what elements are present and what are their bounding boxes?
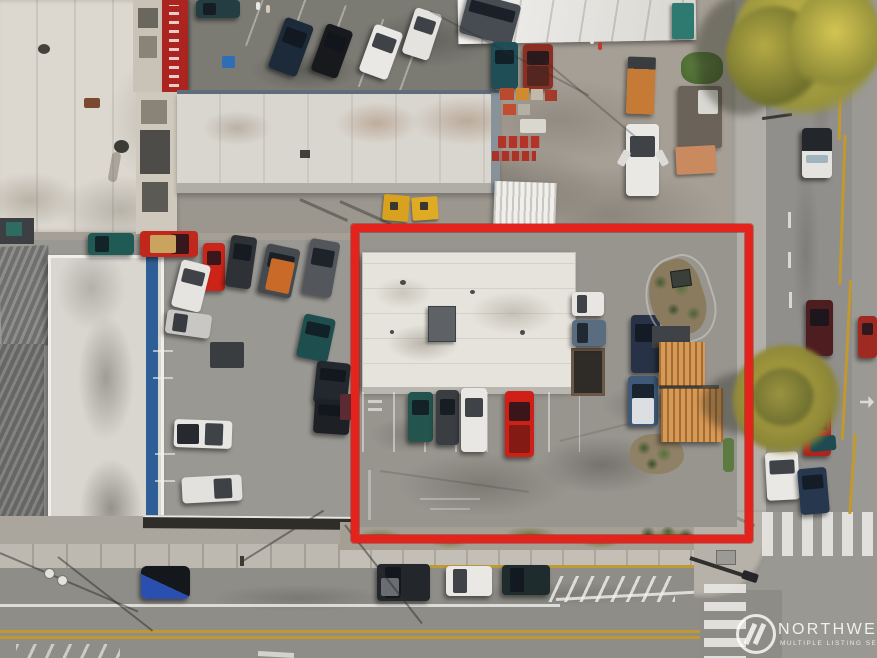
watermark-subtitle: MULTIPLE LISTING SERVICE. xyxy=(780,640,877,647)
pallet xyxy=(545,90,557,101)
pedestrian xyxy=(598,42,602,50)
double-yellow-line xyxy=(0,630,700,633)
utility-cabinet xyxy=(716,550,736,565)
stall-line xyxy=(155,453,175,455)
stall-line xyxy=(153,350,173,352)
parked-car xyxy=(165,309,213,339)
pedestrian xyxy=(256,2,260,10)
storefront-window xyxy=(140,130,170,174)
lane-dash xyxy=(788,212,791,228)
stall-line xyxy=(153,377,173,379)
dark-awning-band xyxy=(143,515,355,530)
parked-car xyxy=(797,467,830,515)
crosswalk-horizontal xyxy=(762,512,877,556)
watermark-title: NORTHWEST xyxy=(778,621,877,639)
parked-car xyxy=(858,316,877,358)
parked-car xyxy=(171,259,212,313)
truck-bed xyxy=(177,424,199,444)
red-merchandise-row xyxy=(498,136,540,148)
utility-trailer xyxy=(675,145,716,175)
storefront-window xyxy=(141,100,167,124)
forklift-detail xyxy=(390,202,398,210)
rooftop-long-top-edge xyxy=(177,90,499,94)
store-sign-text-marks xyxy=(169,5,179,87)
property-boundary-outline xyxy=(351,224,753,543)
parked-car xyxy=(806,300,833,356)
lane-line-white xyxy=(0,604,560,607)
mls-watermark: NORTHWEST MULTIPLE LISTING SERVICE. xyxy=(700,598,877,658)
lane-dash xyxy=(788,252,791,268)
parked-car xyxy=(296,313,336,363)
shingle-roof xyxy=(0,344,44,528)
pickup-truck xyxy=(181,474,242,503)
shingle-roof xyxy=(0,245,52,347)
streetlamp-head xyxy=(57,575,68,586)
roof-vent xyxy=(114,140,129,153)
double-yellow-line xyxy=(0,636,700,639)
lane-dash xyxy=(789,292,792,308)
teal-container xyxy=(6,222,22,236)
hash-markings-partial xyxy=(16,644,120,658)
parked-car xyxy=(765,451,800,501)
teal-dumpster xyxy=(672,3,694,39)
pedestrian xyxy=(590,36,594,44)
aerial-photo: NORTHWEST MULTIPLE LISTING SERVICE. xyxy=(0,0,877,658)
pallet-sacks xyxy=(520,119,546,133)
pallet xyxy=(516,88,529,100)
handicap-symbol xyxy=(222,56,235,68)
blue-roof-trim xyxy=(146,255,158,530)
storefront-window xyxy=(138,8,158,28)
pallet xyxy=(518,104,530,115)
parked-car xyxy=(196,0,240,18)
parked-car xyxy=(88,233,134,255)
pallet xyxy=(500,88,514,100)
trailer-dark xyxy=(210,342,244,368)
tree-canopy xyxy=(752,368,814,426)
driving-pickup xyxy=(802,128,832,178)
nwmls-circle-slashes-icon xyxy=(736,614,776,654)
pallet xyxy=(503,104,516,115)
pickup-truck xyxy=(301,238,340,298)
roof-hatch xyxy=(300,150,310,158)
pickup-windshield xyxy=(806,155,828,163)
hash-markings xyxy=(545,576,675,602)
blue-suv xyxy=(141,566,190,599)
retaining-wall-left xyxy=(0,544,352,568)
storefront-window xyxy=(139,36,157,58)
rooftop-long xyxy=(177,93,499,193)
flatbed-truck-orange xyxy=(626,57,656,115)
wood-bed xyxy=(150,235,176,253)
stall-line xyxy=(155,480,175,482)
red-merchandise-row xyxy=(492,151,536,161)
storefront-window xyxy=(142,182,168,212)
roof-vent xyxy=(38,44,50,54)
parked-car xyxy=(446,566,492,596)
roof-patch xyxy=(84,98,100,108)
white-awning xyxy=(493,181,556,227)
forklift-detail xyxy=(420,202,428,210)
pickup-truck xyxy=(225,234,258,289)
pedestrian xyxy=(266,5,270,13)
pallet xyxy=(531,89,543,100)
streetlamp-head xyxy=(44,568,55,579)
rooftop-long-bottom-band xyxy=(177,183,499,193)
utility-pole xyxy=(240,556,244,566)
parked-car xyxy=(502,565,550,595)
